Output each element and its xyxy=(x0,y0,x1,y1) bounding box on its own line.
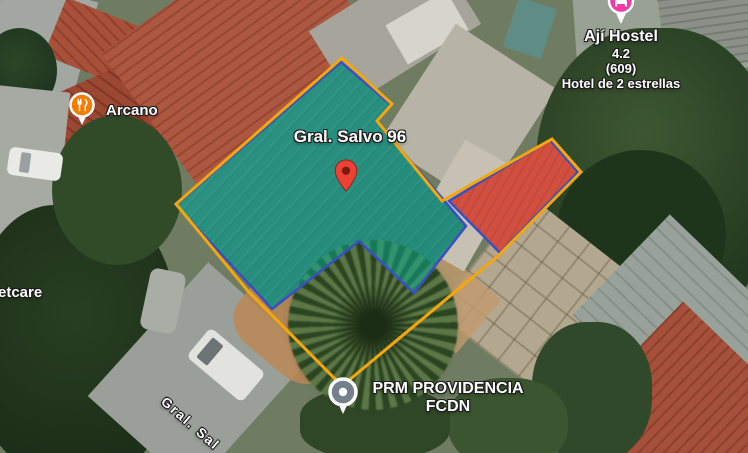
place-pin-icon[interactable] xyxy=(326,373,360,417)
place-label-line2[interactable]: FCDN xyxy=(358,398,538,416)
place-label-line1[interactable]: PRM PROVIDENCIA xyxy=(358,380,538,398)
hotel-review-count: (609) xyxy=(531,61,711,76)
place-label-block[interactable]: PRM PROVIDENCIA FCDN xyxy=(358,380,538,416)
satellite-map: Gral. Salvo 96 Arcano Ají Hostel 4.2 (60… xyxy=(0,0,748,453)
hotel-rating: 4.2 xyxy=(531,46,711,61)
hotel-label-block[interactable]: Ají Hostel 4.2 (609) Hotel de 2 estrella… xyxy=(531,28,711,91)
restaurant-pin-icon[interactable] xyxy=(68,92,96,128)
property-label[interactable]: Gral. Salvo 96 xyxy=(288,127,412,147)
hotel-name[interactable]: Ají Hostel xyxy=(531,28,711,46)
main-building-overlay[interactable] xyxy=(176,62,466,309)
property-pin-icon[interactable] xyxy=(333,158,359,193)
hotel-pin-icon[interactable] xyxy=(606,0,636,27)
partial-poi-label[interactable]: etcare xyxy=(0,284,42,301)
hotel-category: Hotel de 2 estrellas xyxy=(531,76,711,91)
restaurant-label[interactable]: Arcano xyxy=(106,102,158,119)
